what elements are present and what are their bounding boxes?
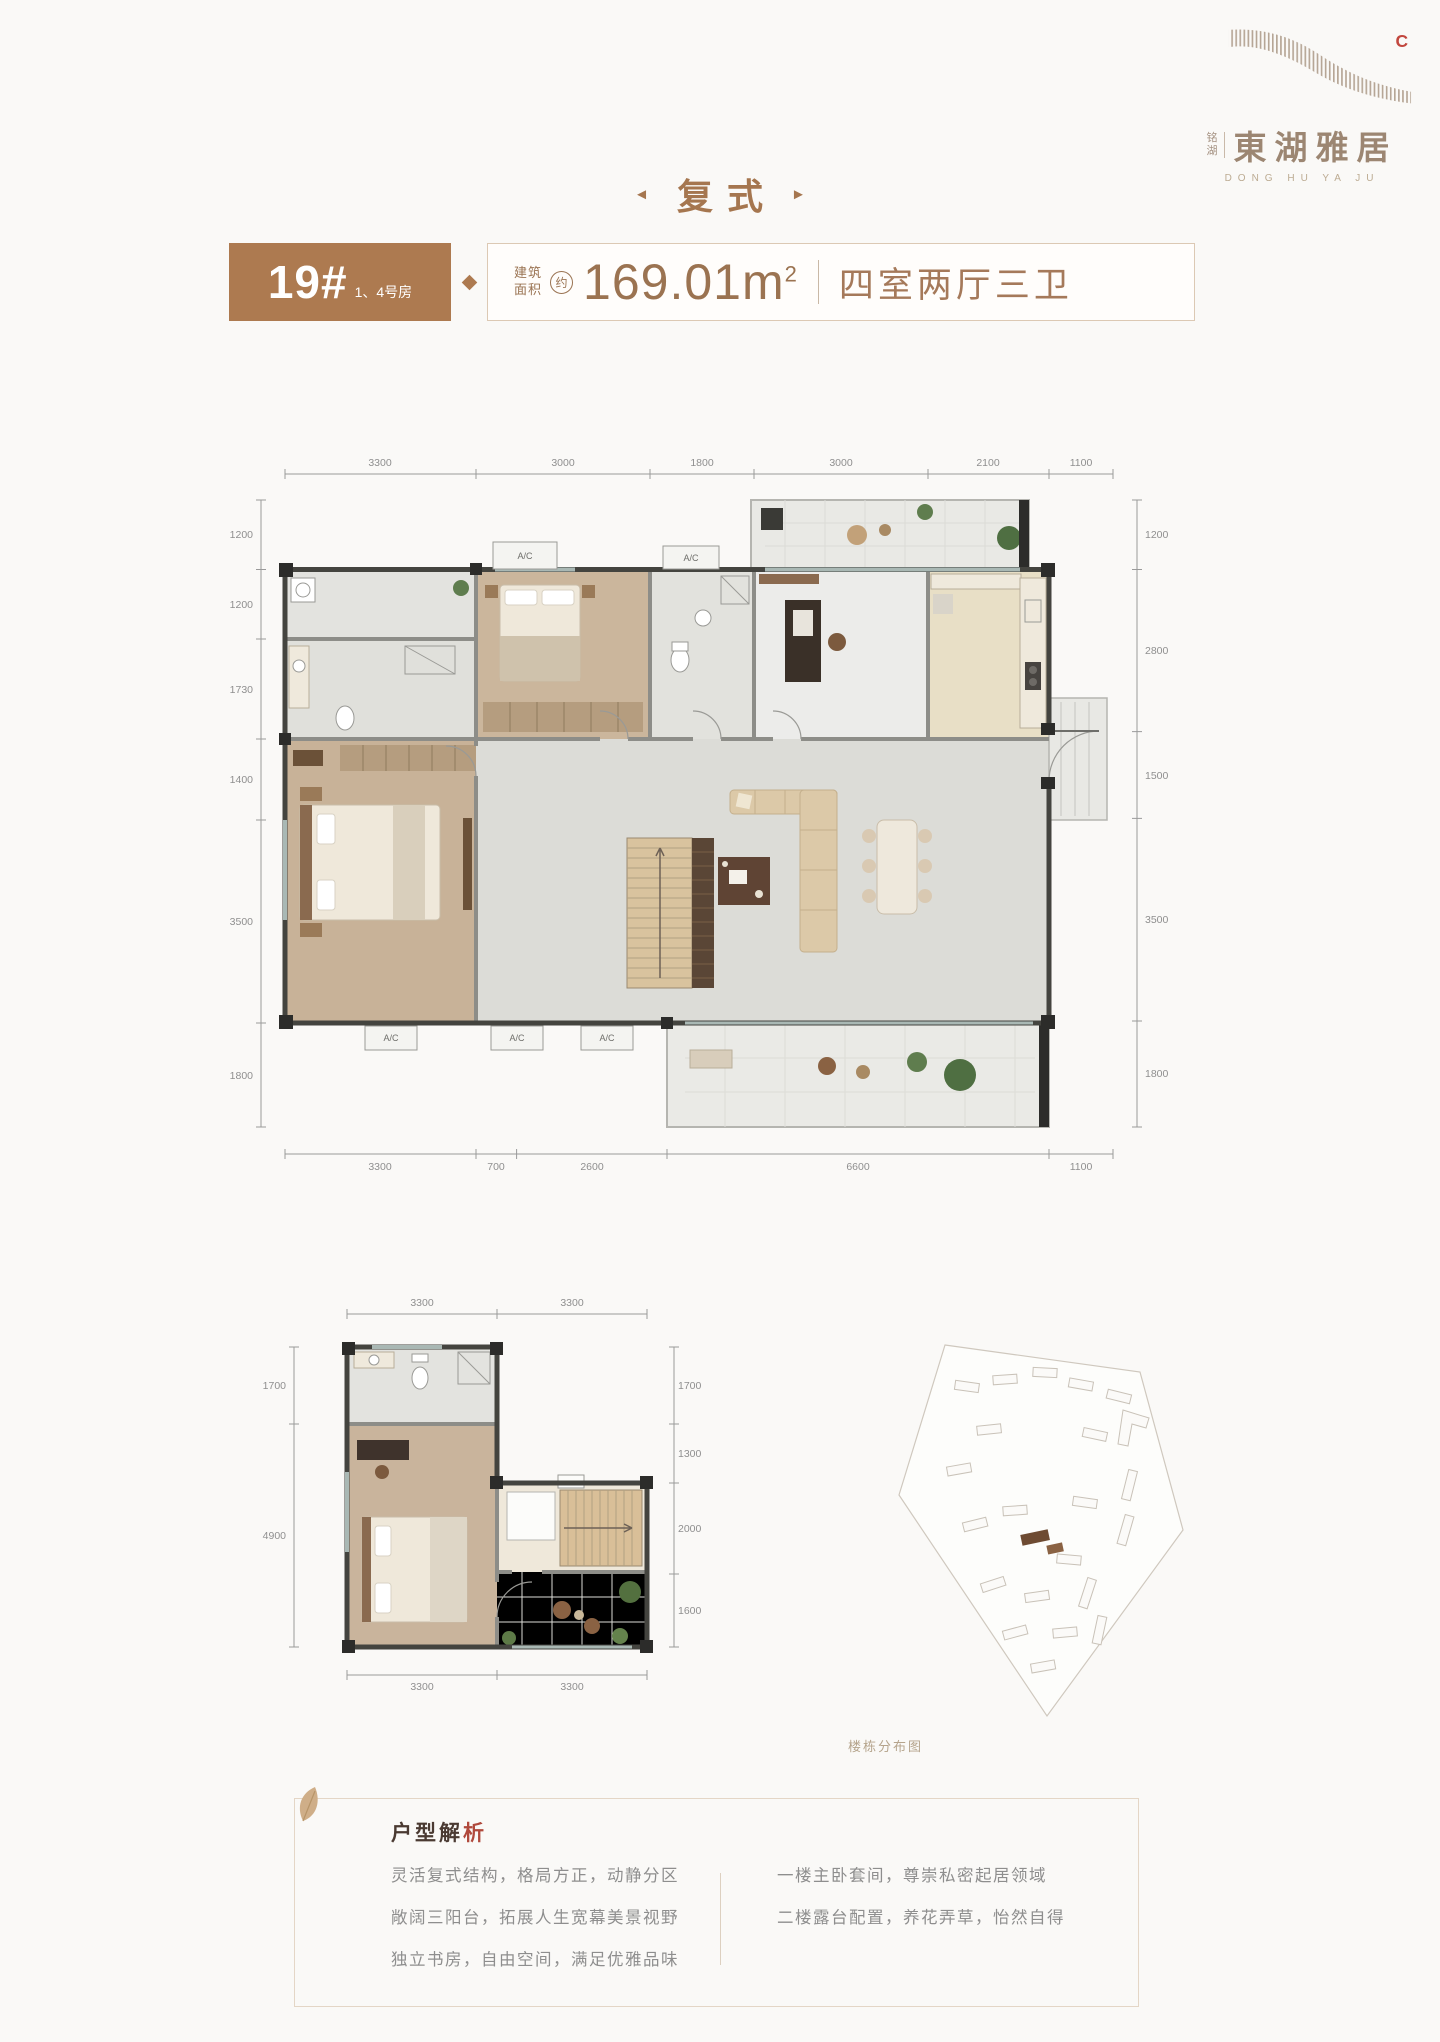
site-plan [885,1330,1195,1730]
brand-logo: C 铭 湖 東湖雅居 DONG HU YA JU [1168,22,1436,184]
dim-label: 3300 [410,1681,434,1693]
analysis-line: 一楼主卧套间，尊崇私密起居领域 [777,1855,1065,1897]
dim-label: 3300 [368,457,392,469]
area-unit-sup: 2 [785,261,798,286]
stairs-icon [627,838,692,988]
plant-icon [453,580,469,596]
dim-label: 1800 [1145,1068,1169,1080]
dining-table-icon [862,820,932,914]
bookshelf-icon [692,838,714,988]
dim-label: 1800 [230,1070,254,1082]
sink-icon [695,610,711,626]
dim-label: 1100 [1070,1161,1093,1173]
plant-icon [907,1052,927,1072]
chair-icon [828,633,846,651]
approx-circle: 约 [550,271,573,294]
area-label-line1: 建筑 [514,265,542,282]
dim-label: 1200 [230,599,254,611]
section-title: ◄ 复式 ► [0,168,1440,220]
room-number: 1、4号房 [355,282,413,302]
dim-label: 3300 [410,1297,434,1309]
right-marker-icon: ► [791,186,806,203]
ac-label: A/C [509,1033,525,1043]
block-number-box: 19# 1、4号房 [229,243,451,321]
wardrobe-icon [340,745,476,771]
dim-label: 4900 [263,1530,287,1542]
fridge-icon [933,594,953,614]
balcony-pot-icon [818,1057,836,1075]
analysis-line: 二楼露台配置，养花弄草，怡然自得 [777,1897,1065,1939]
dim-label: 1700 [678,1380,702,1392]
nightstand-icon [300,923,322,937]
dim-label: 1200 [1145,529,1169,541]
toilet-icon [336,706,354,730]
plant-icon [917,504,933,520]
top-balcony [751,500,1029,570]
plant-icon [944,1059,976,1091]
toilet-icon [412,1367,428,1389]
plant-icon [612,1628,628,1644]
site-plan-caption: 楼栋分布图 [848,1736,923,1755]
nightstand-icon [582,585,595,598]
stair-landing [507,1492,555,1540]
coffee-table-icon [729,870,747,884]
analysis-box: 户型解析 灵活复式结构，格局方正，动静分区 敞阔三阳台，拓展人生宽幕美景视野 独… [294,1798,1139,2007]
area-value: 169.01m2 [583,253,798,311]
area-label: 建筑 面积 [514,265,542,299]
area-value-number: 169.01m [583,254,785,310]
dim-label: 1500 [1145,770,1169,782]
terrace-chair-icon [553,1601,571,1619]
nightstand-icon [300,787,322,801]
terrace-chair-icon [584,1618,600,1634]
ac-label: A/C [383,1033,399,1043]
dim-label: 3300 [560,1681,584,1693]
analysis-line: 独立书房，自由空间，满足优雅品味 [391,1939,679,1981]
logo-mark-letter: C [1396,31,1409,51]
dim-label: 1730 [230,684,254,696]
analysis-title-main: 户型解 [391,1822,463,1845]
analysis-title-accent: 析 [463,1822,487,1845]
area-label-line2: 面积 [514,282,542,299]
section-title-text: 复式 [663,168,777,220]
brand-name: 東湖雅居 [1234,121,1398,169]
bed-2f-icon [362,1517,467,1622]
vanity-icon [289,646,309,708]
terrace-table-icon [574,1610,584,1620]
brand-small-char-2: 湖 [1207,145,1218,158]
analysis-divider [720,1873,721,1965]
layout-text: 四室两厅三卫 [839,257,1073,308]
header-divider [818,260,819,304]
dim-label: 2600 [580,1161,604,1173]
dresser-icon [293,750,323,766]
dim-label: 2800 [1145,645,1169,657]
floor2-plan: 3300 3300 1700 4900 1700 1300 2000 1600 … [262,1292,732,1742]
brand-small-chars: 铭 湖 [1207,132,1225,157]
unit-header: 19# 1、4号房 建筑 面积 约 169.01m2 四室两厅三卫 [229,243,1195,321]
dim-label: 3300 [368,1161,392,1173]
dim-label: 3300 [560,1297,584,1309]
brand-small-char-1: 铭 [1207,132,1218,145]
counter-icon [931,574,1021,589]
dim-label: 1400 [230,774,254,786]
dim-label: 1800 [690,457,714,469]
dim-label: 1300 [678,1448,702,1460]
block-number: 19# [268,255,348,309]
dim-label: 3000 [829,457,853,469]
leaf-icon [289,1783,331,1829]
plant-icon [619,1581,641,1603]
dim-label: 3500 [230,916,254,928]
entry-porch [1049,698,1107,820]
left-marker-icon: ◄ [634,186,649,203]
poster-page: C 铭 湖 東湖雅居 DONG HU YA JU ◄ 复式 ► 19# 1、4号… [0,0,1440,2042]
dim-label: 6600 [846,1161,870,1173]
wardrobe-icon [483,702,643,732]
dim-label: 700 [487,1161,505,1173]
desk-icon [357,1440,409,1460]
balcony-table-icon [847,525,867,545]
analysis-left-column: 灵活复式结构，格局方正，动静分区 敞阔三阳台，拓展人生宽幕美景视野 独立书房，自… [391,1855,679,1981]
washer-icon [291,578,315,602]
ac-label: A/C [599,1033,615,1043]
shelf-icon [759,574,819,584]
bench-icon [690,1050,732,1068]
dim-label: 1600 [678,1605,702,1617]
balcony-equipment [761,508,783,530]
analysis-right-column: 一楼主卧套间，尊崇私密起居领域 二楼露台配置，养花弄草，怡然自得 [777,1855,1065,1939]
master-bathroom [285,639,476,739]
wave-shape [1229,29,1411,103]
guest-bathroom [650,570,754,740]
study-room [754,570,928,740]
master-bed-icon [300,805,440,920]
dim-label: 1700 [263,1380,287,1392]
dim-label: 2100 [976,457,1000,469]
chair-icon [375,1465,389,1479]
diamond-separator [451,243,487,321]
toilet-icon [671,648,689,672]
plant-icon [997,526,1021,550]
tv-console-icon [463,818,472,910]
area-info-box: 建筑 面积 约 169.01m2 四室两厅三卫 [487,243,1195,321]
bed2-icon [500,585,580,681]
dim-label: 3500 [1145,914,1169,926]
dim-label: 1100 [1070,457,1093,469]
analysis-line: 灵活复式结构，格局方正，动静分区 [391,1855,679,1897]
floor1-plan: A/C A/C A/C A/C A/C 3300 3000 1800 3000 … [225,450,1215,1190]
dim-label: 1200 [230,529,254,541]
analysis-line: 敞阔三阳台，拓展人生宽幕美景视野 [391,1897,679,1939]
dim-label: 2000 [678,1523,702,1535]
wave-logo-icon: C [1220,22,1420,114]
nightstand-icon [485,585,498,598]
ac-label: A/C [517,551,533,561]
dim-label: 3000 [551,457,575,469]
analysis-title: 户型解析 [391,1817,487,1847]
plant-icon [502,1631,516,1645]
stairs-2f-icon [560,1490,642,1566]
ac-label: A/C [683,553,699,563]
